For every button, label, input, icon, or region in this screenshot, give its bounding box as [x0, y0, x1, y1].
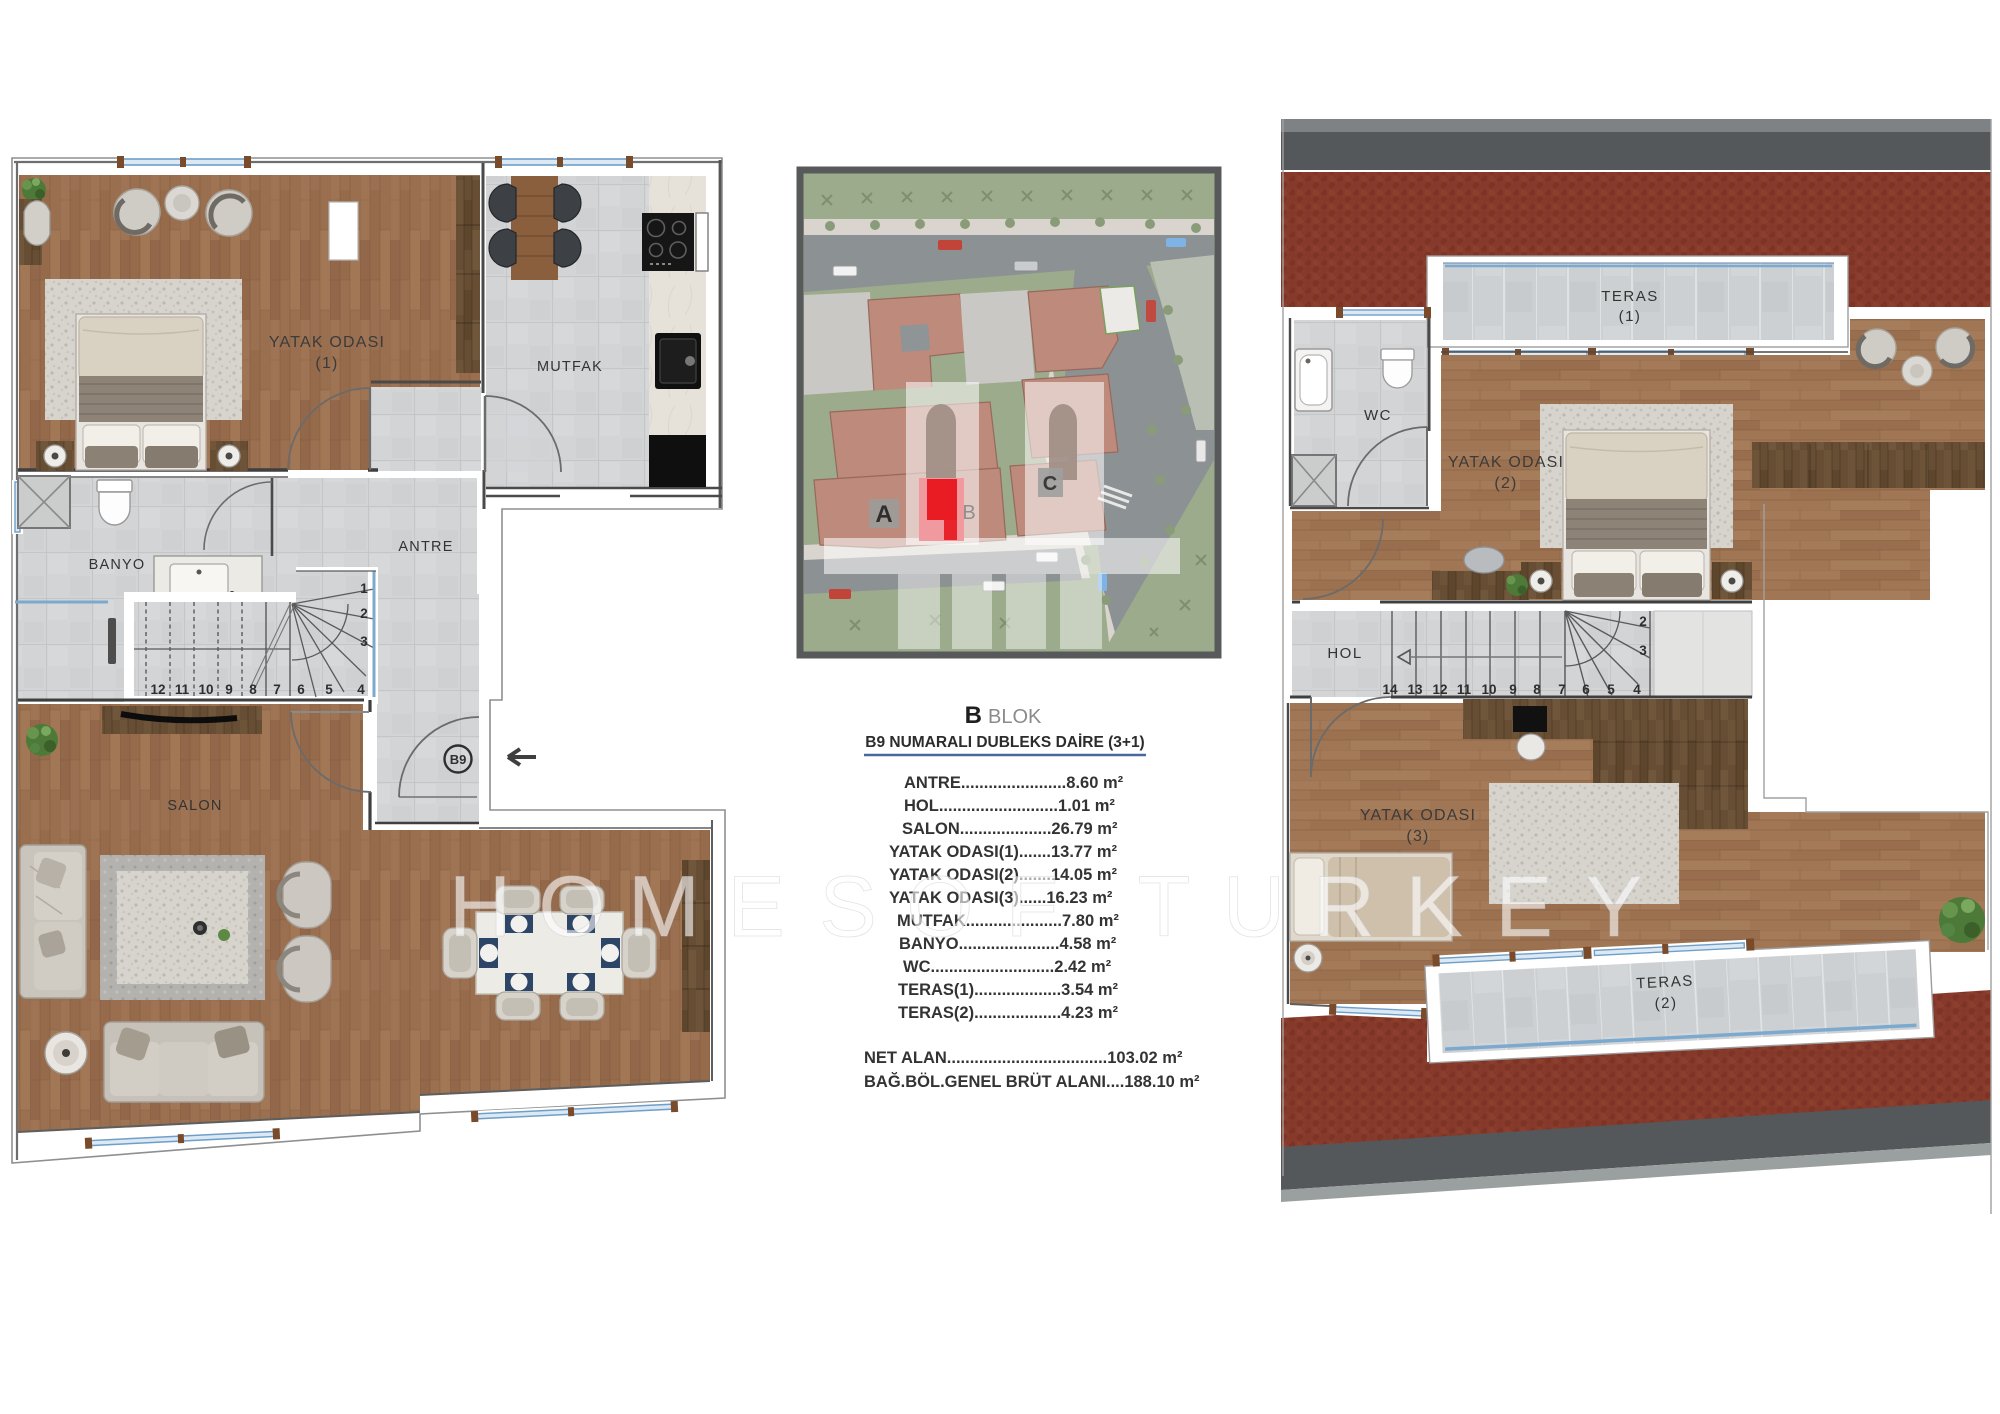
- svg-text:K: K: [1405, 859, 1462, 955]
- svg-text:(2): (2): [1654, 994, 1678, 1012]
- svg-text:A: A: [875, 501, 892, 528]
- svg-text:9: 9: [225, 682, 233, 697]
- svg-text:7: 7: [1558, 682, 1566, 697]
- svg-text:TERAS(2)...................4.2: TERAS(2)...................4.23 m²: [898, 1004, 1119, 1022]
- svg-text:NET ALAN......................: NET ALAN................................…: [864, 1049, 1183, 1067]
- svg-text:YATAK ODASI: YATAK ODASI: [1448, 454, 1564, 471]
- svg-text:YATAK ODASI: YATAK ODASI: [269, 334, 385, 351]
- svg-text:6: 6: [1582, 682, 1590, 697]
- svg-text:12: 12: [1432, 682, 1447, 697]
- svg-text:12: 12: [150, 682, 165, 697]
- svg-text:(1): (1): [315, 355, 338, 372]
- svg-text:4: 4: [1633, 682, 1641, 697]
- svg-text:BANYO: BANYO: [89, 557, 146, 573]
- svg-text:3: 3: [360, 634, 368, 649]
- svg-text:4: 4: [357, 682, 365, 697]
- svg-text:HOL: HOL: [1327, 645, 1362, 662]
- svg-text:E: E: [1495, 859, 1552, 955]
- svg-text:2: 2: [1639, 614, 1647, 629]
- svg-text:1: 1: [360, 581, 368, 596]
- svg-text:M: M: [628, 859, 700, 955]
- svg-text:11: 11: [1457, 682, 1472, 697]
- svg-text:SALON: SALON: [167, 798, 222, 814]
- svg-text:10: 10: [198, 682, 213, 697]
- svg-text:2: 2: [360, 606, 368, 621]
- svg-text:TERAS(1)...................3.5: TERAS(1)...................3.54 m²: [898, 981, 1119, 999]
- svg-text:H: H: [449, 859, 511, 955]
- svg-text:O: O: [907, 859, 974, 955]
- svg-text:6: 6: [297, 682, 305, 697]
- svg-text:YATAK ODASI: YATAK ODASI: [1360, 807, 1476, 824]
- svg-text:T: T: [1138, 859, 1191, 955]
- svg-text:E: E: [727, 859, 784, 955]
- svg-text:5: 5: [1607, 682, 1615, 697]
- svg-text:(3): (3): [1406, 828, 1429, 845]
- svg-text:MUTFAK: MUTFAK: [537, 359, 603, 375]
- svg-text:Y: Y: [1585, 859, 1642, 955]
- svg-text:SALON....................26.79: SALON....................26.79 m²: [902, 820, 1118, 838]
- svg-text:ANTRE: ANTRE: [398, 539, 453, 555]
- svg-text:C: C: [1043, 473, 1057, 495]
- svg-text:8: 8: [1533, 682, 1541, 697]
- svg-text:BBLOK: BBLOK: [965, 702, 1042, 729]
- svg-text:O: O: [539, 859, 606, 955]
- svg-text:3: 3: [1639, 643, 1647, 658]
- svg-text:U: U: [1223, 859, 1285, 955]
- svg-text:ANTRE.......................8.: ANTRE.......................8.60 m²: [904, 774, 1124, 792]
- svg-text:WC: WC: [1364, 407, 1392, 424]
- svg-text:S: S: [819, 859, 876, 955]
- svg-text:7: 7: [273, 682, 281, 697]
- svg-text:TERAS: TERAS: [1636, 972, 1694, 992]
- svg-text:10: 10: [1481, 682, 1496, 697]
- svg-text:9: 9: [1509, 682, 1517, 697]
- svg-text:BAĞ.BÖL.GENEL BRÜT ALANI....18: BAĞ.BÖL.GENEL BRÜT ALANI....188.10 m²: [864, 1072, 1200, 1091]
- svg-text:WC...........................2: WC...........................2.42 m²: [903, 958, 1112, 976]
- svg-text:11: 11: [175, 682, 190, 697]
- svg-text:TERAS: TERAS: [1601, 288, 1659, 305]
- svg-text:14: 14: [1382, 682, 1398, 697]
- svg-text:F: F: [1006, 859, 1059, 955]
- svg-text:B: B: [962, 502, 975, 524]
- svg-text:(2): (2): [1494, 475, 1517, 492]
- svg-text:5: 5: [325, 682, 333, 697]
- svg-text:B9 NUMARALI DUBLEKS DAİRE (3+1: B9 NUMARALI DUBLEKS DAİRE (3+1): [865, 734, 1144, 751]
- svg-text:8: 8: [249, 682, 257, 697]
- svg-text:(1): (1): [1619, 308, 1642, 325]
- svg-text:B9: B9: [450, 752, 467, 767]
- svg-text:HOL..........................1: HOL..........................1.01 m²: [904, 797, 1115, 815]
- svg-text:R: R: [1313, 859, 1375, 955]
- svg-text:13: 13: [1407, 682, 1423, 697]
